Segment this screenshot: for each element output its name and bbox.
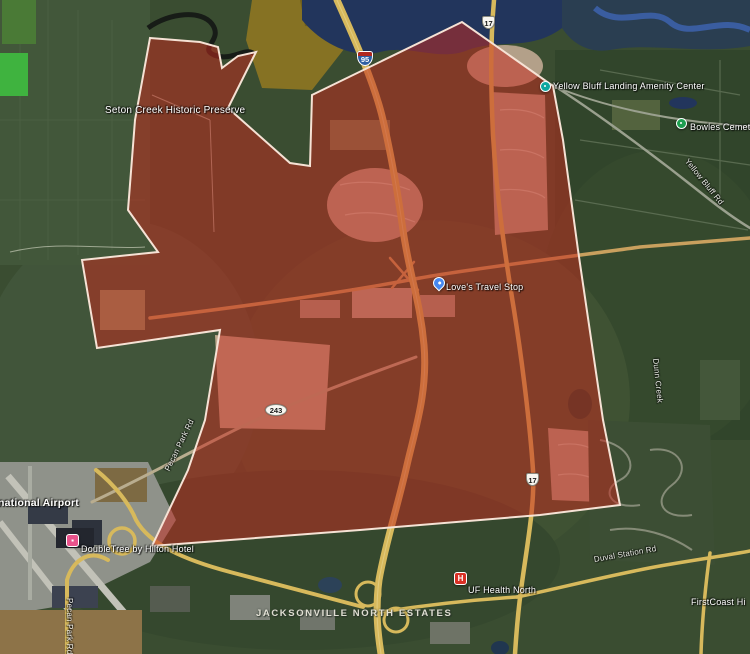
hospital-letter: H (458, 574, 464, 583)
map-canvas (0, 0, 750, 654)
us17-south-number: 17 (528, 476, 536, 485)
hotel-marker-icon[interactable]: ▪ (66, 534, 79, 547)
cemetery-marker-icon[interactable] (676, 118, 687, 129)
fl-243-shield: 243 (265, 404, 287, 416)
fl243-number: 243 (270, 406, 283, 415)
i95-number: 95 (361, 55, 369, 64)
amenity-center-marker-icon[interactable] (540, 81, 551, 92)
hospital-marker-icon[interactable]: H (454, 572, 467, 585)
us17-north-number: 17 (484, 19, 492, 28)
satellite-map[interactable]: 95 17 17 243 ▪ H Seton Creek Historic Pr… (0, 0, 750, 654)
